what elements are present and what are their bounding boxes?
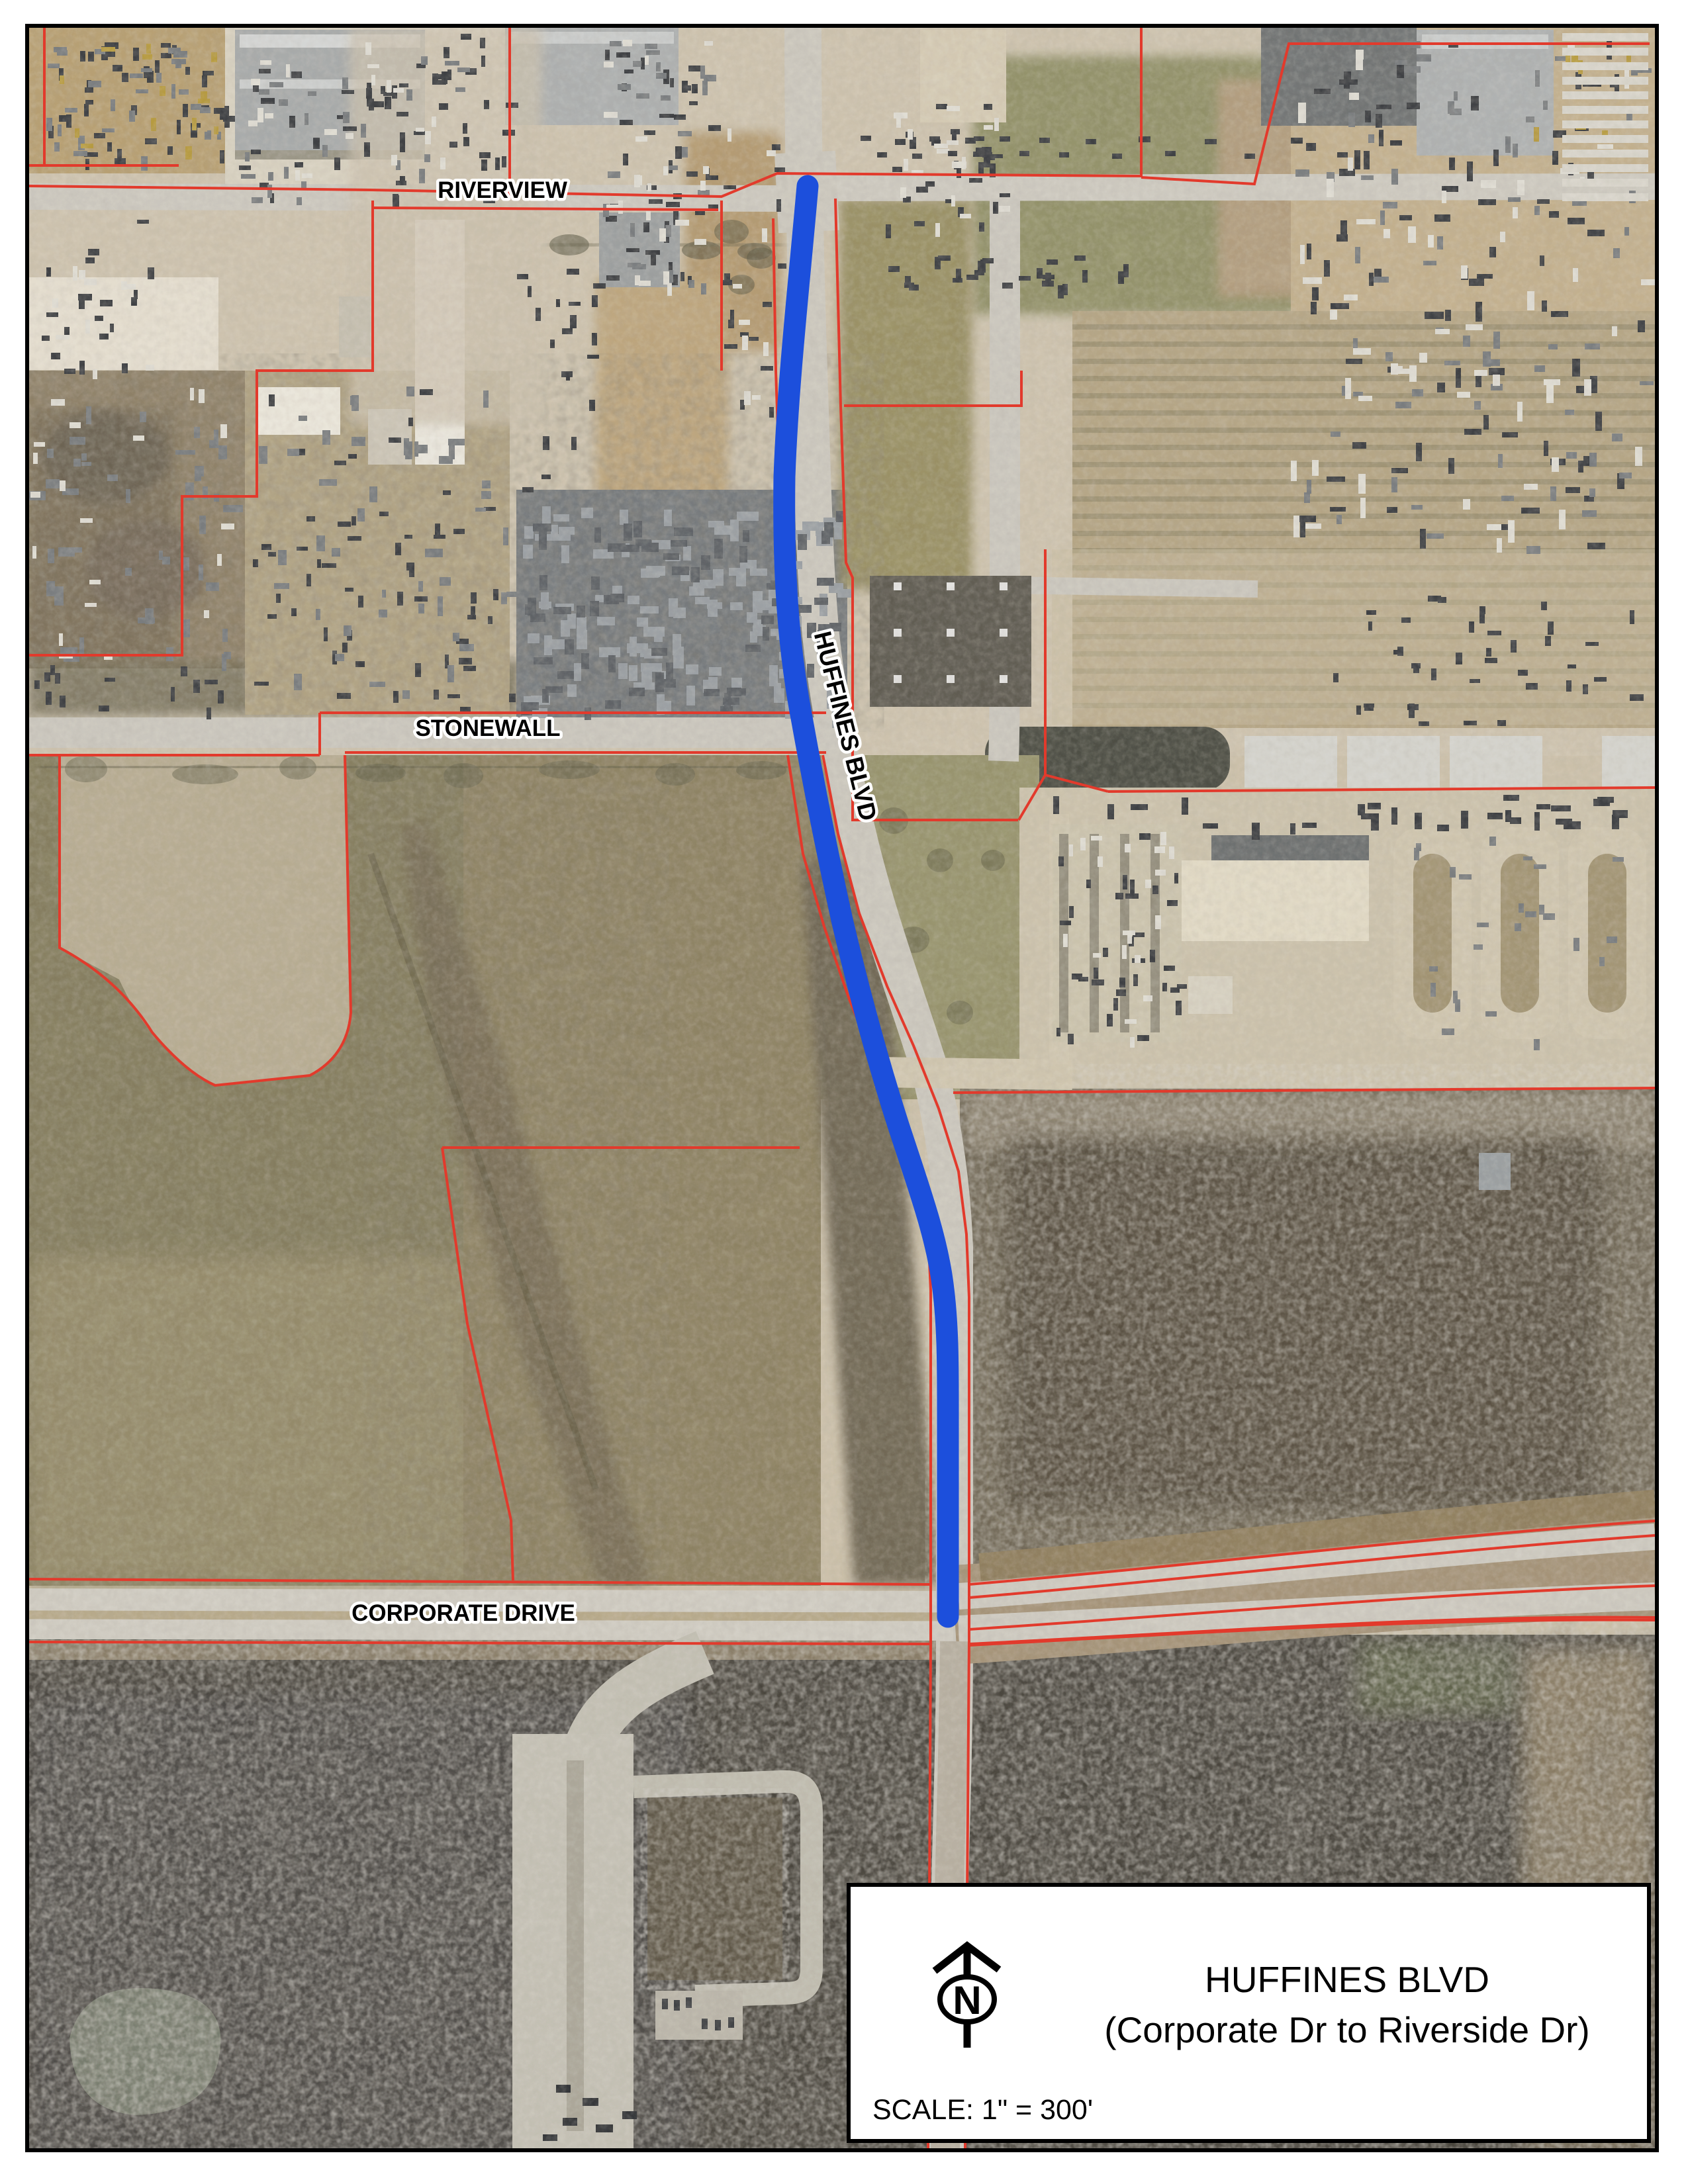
svg-text:(Corporate Dr to Riverside Dr): (Corporate Dr to Riverside Dr) xyxy=(1104,2009,1590,2050)
svg-text:N: N xyxy=(953,1978,981,2023)
svg-text:STONEWALL: STONEWALL xyxy=(415,715,560,741)
svg-text:HUFFINES BLVD: HUFFINES BLVD xyxy=(1205,1959,1489,2000)
svg-text:RIVERVIEW: RIVERVIEW xyxy=(438,177,567,203)
svg-text:SCALE: 1" = 300': SCALE: 1" = 300' xyxy=(872,2094,1093,2126)
svg-text:CORPORATE DRIVE: CORPORATE DRIVE xyxy=(352,1600,575,1626)
